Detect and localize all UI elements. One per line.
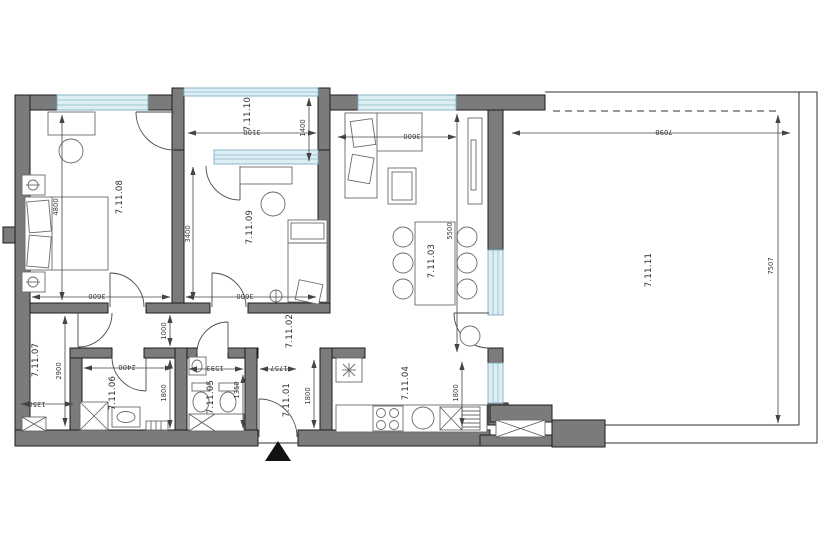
dim-wc-height: 1350 bbox=[233, 381, 241, 398]
dim-terrace-width: 7098 bbox=[655, 128, 672, 136]
bedroom1-door bbox=[110, 273, 144, 307]
loggia-window bbox=[214, 150, 318, 164]
entrance-arrow bbox=[265, 441, 291, 461]
terrace-boundary bbox=[545, 92, 817, 443]
room-label-bedroom2: 7.11.09 bbox=[245, 210, 255, 245]
room-label-hall: 7.11.02 bbox=[285, 314, 295, 349]
wc-door bbox=[197, 322, 228, 353]
room-label-living: 7.11.03 bbox=[427, 244, 437, 279]
dim-kitchen-height: 1800 bbox=[452, 384, 460, 401]
floor-plan-page: 4800 3600 3400 3600 3100 1400 3600 5500 … bbox=[0, 0, 832, 550]
loggia-railing bbox=[184, 88, 318, 96]
floor-plan-drawing: 4800 3600 3400 3600 3100 1400 3600 5500 … bbox=[0, 0, 832, 550]
shaft-column-left bbox=[22, 417, 46, 431]
dim-bathroom-width: 2400 bbox=[118, 363, 135, 371]
dim-hall-width: 1000 bbox=[160, 322, 168, 339]
corridor-door bbox=[78, 313, 112, 347]
snowflake-icon bbox=[342, 363, 356, 377]
dim-bedroom2-height: 3400 bbox=[184, 225, 192, 242]
kitchen-terrace-window-lower bbox=[488, 363, 503, 403]
dim-bedroom1-height: 4800 bbox=[52, 198, 60, 215]
entrance-door bbox=[258, 399, 298, 443]
dim-living-height: 5500 bbox=[446, 222, 454, 239]
dim-living-width: 3600 bbox=[403, 132, 420, 140]
dim-terrace-height: 7507 bbox=[767, 257, 775, 274]
dim-entry-width: 1757 bbox=[270, 364, 287, 372]
kitchen-furniture bbox=[336, 358, 487, 432]
bedroom2-door bbox=[212, 273, 246, 307]
shaft-column-right bbox=[496, 420, 545, 437]
room-label-wc: 7.11.05 bbox=[206, 380, 216, 415]
room-label-corridor: 7.11.07 bbox=[31, 343, 41, 378]
living-terrace-window-upper bbox=[488, 250, 503, 315]
loggia-door-bedroom1 bbox=[136, 112, 174, 150]
room-label-loggia: 7.11.10 bbox=[243, 97, 253, 132]
room-label-entry: 7.11.01 bbox=[282, 383, 292, 418]
dim-corridor-width: 1350 bbox=[28, 400, 45, 408]
bedroom1-window bbox=[57, 95, 148, 110]
bedroom1-furniture bbox=[22, 112, 108, 292]
living-furniture bbox=[345, 113, 482, 346]
room-label-bedroom1: 7.11.08 bbox=[115, 180, 125, 215]
room-label-kitchen: 7.11.04 bbox=[401, 366, 411, 401]
dim-entry-height: 1800 bbox=[304, 387, 312, 404]
loggia-door-bedroom2 bbox=[206, 166, 240, 200]
room-label-terrace: 7.11.11 bbox=[644, 253, 654, 288]
room-label-bathroom: 7.11.06 bbox=[108, 376, 118, 411]
dim-corridor-height: 2900 bbox=[55, 362, 63, 379]
bathroom-furniture bbox=[80, 402, 168, 430]
dim-wc-width: 1593 bbox=[206, 364, 223, 372]
dim-bathroom-height: 1800 bbox=[160, 384, 168, 401]
dim-bedroom1-width: 3600 bbox=[88, 292, 105, 300]
dim-loggia-depth: 1400 bbox=[299, 119, 307, 136]
dim-bedroom2-width: 3600 bbox=[236, 292, 253, 300]
living-top-window bbox=[358, 95, 456, 110]
